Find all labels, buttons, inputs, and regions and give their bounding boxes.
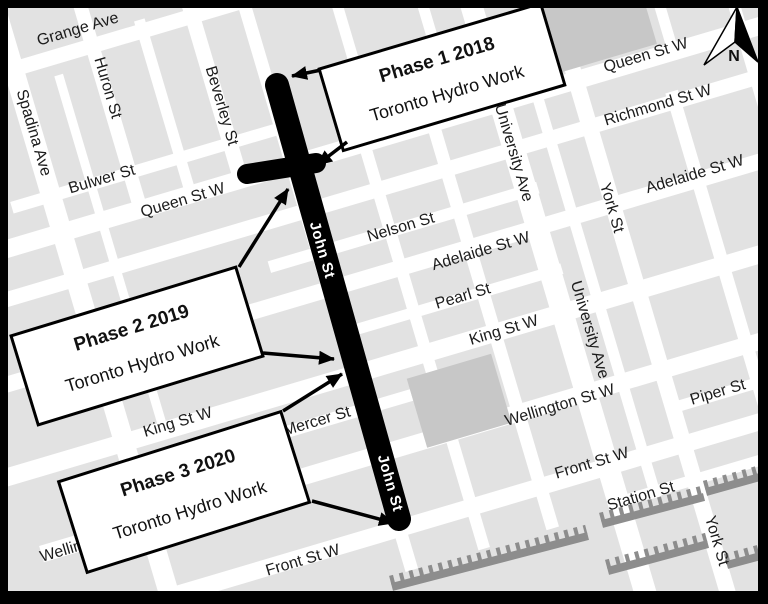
map-canvas: Grange Ave Bulwer St Queen St W Queen St… [0,0,768,604]
building-block [407,354,512,448]
north-label: N [728,48,740,66]
